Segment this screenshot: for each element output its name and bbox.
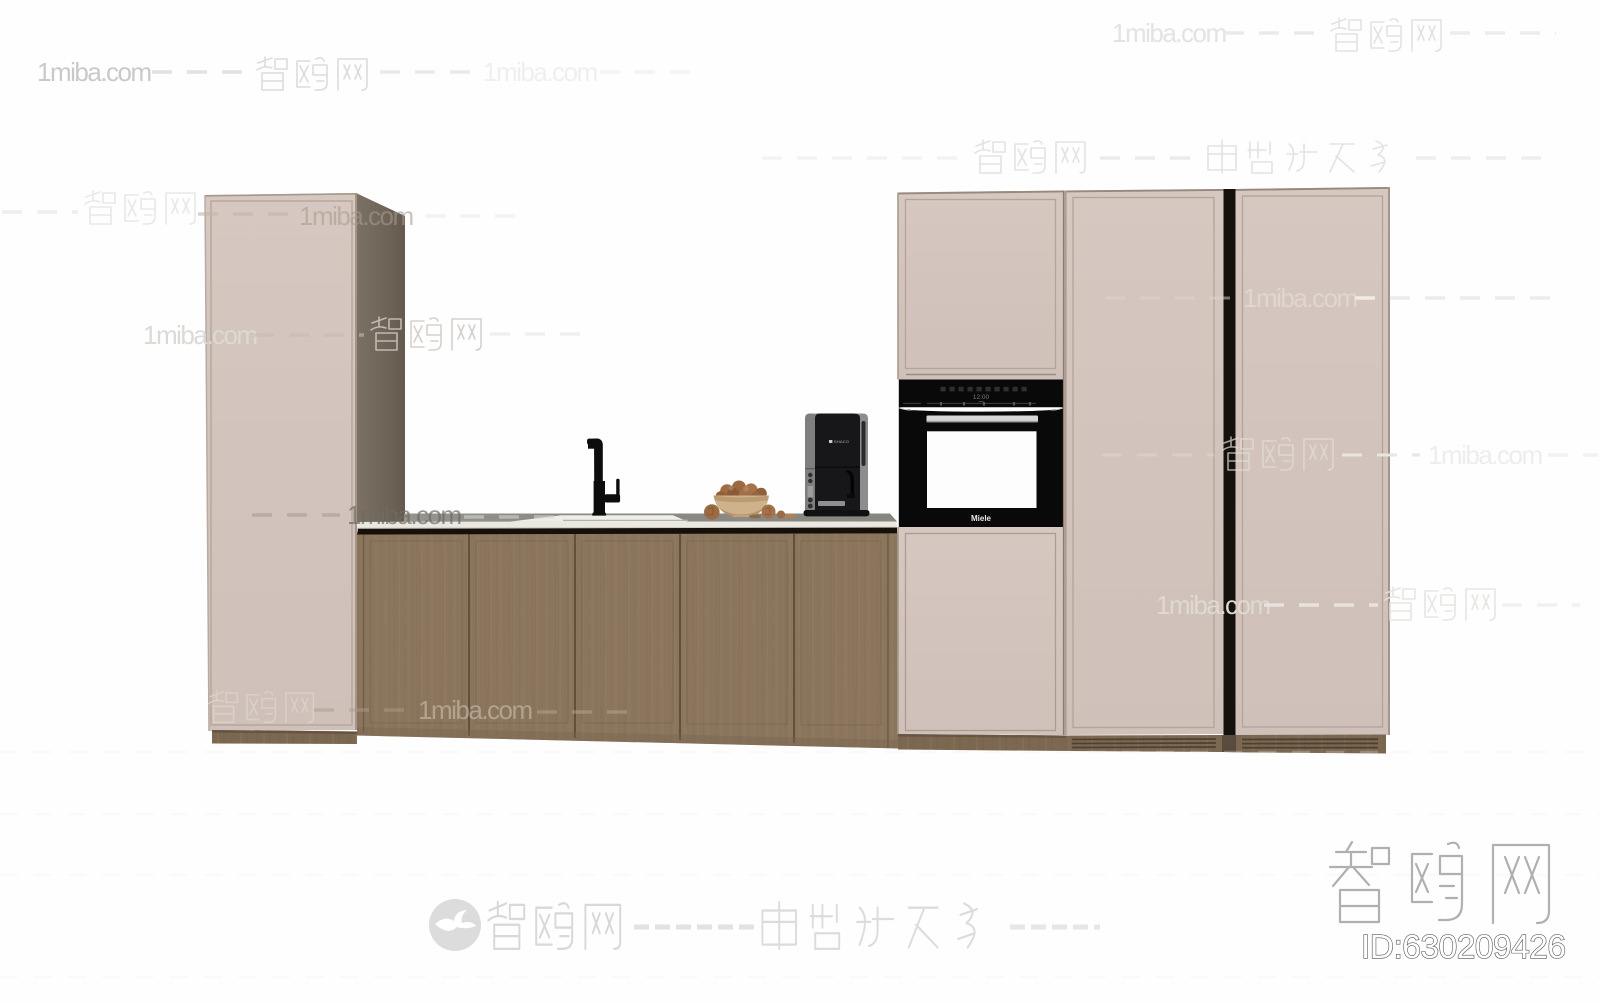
svg-text:1miba.com: 1miba.com [483, 57, 597, 87]
svg-text:1miba.com: 1miba.com [1243, 283, 1357, 313]
svg-text:1miba.com: 1miba.com [1156, 590, 1270, 620]
svg-text:1miba.com: 1miba.com [1428, 440, 1542, 470]
svg-text:1miba.com: 1miba.com [299, 201, 413, 231]
svg-text:1miba.com: 1miba.com [1112, 18, 1226, 48]
svg-text:1miba.com: 1miba.com [347, 500, 461, 530]
svg-text:Miele: Miele [971, 514, 992, 523]
svg-text:SHACO: SHACO [834, 439, 849, 444]
svg-text:1miba.com: 1miba.com [37, 57, 151, 87]
svg-text:ID:630209426: ID:630209426 [1361, 929, 1566, 966]
svg-text:12:00: 12:00 [973, 394, 990, 401]
svg-text:1miba.com: 1miba.com [418, 695, 532, 725]
svg-text:1miba.com: 1miba.com [143, 320, 257, 350]
